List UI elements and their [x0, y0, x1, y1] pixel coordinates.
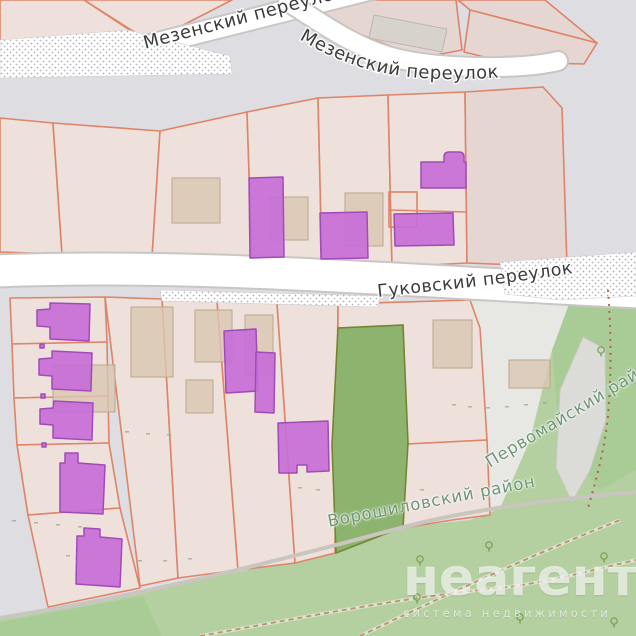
- building: [433, 320, 472, 368]
- building: [172, 178, 220, 223]
- residential-building: [255, 352, 275, 413]
- watermark-tagline: система недвижимости: [403, 608, 636, 620]
- building: [509, 360, 550, 388]
- parcel: [0, 118, 62, 254]
- residential-building: [249, 177, 284, 258]
- watermark: неагент система недвижимости: [403, 552, 636, 620]
- map-canvas[interactable]: Мезенский переулок Мезенский переулок Гу…: [0, 0, 636, 636]
- parcel: [465, 87, 567, 267]
- building: [186, 380, 213, 413]
- watermark-brand: неагент: [403, 552, 636, 604]
- building-dot: [41, 394, 45, 398]
- residential-building: [320, 212, 368, 259]
- parcel: [53, 123, 160, 258]
- residential-building: [278, 421, 329, 473]
- building-dot: [42, 443, 46, 447]
- building-dot: [40, 344, 44, 348]
- map-viewport[interactable]: Мезенский переулок Мезенский переулок Гу…: [0, 0, 636, 636]
- residential-building: [224, 329, 258, 393]
- building: [131, 307, 173, 377]
- residential-building: [394, 213, 454, 246]
